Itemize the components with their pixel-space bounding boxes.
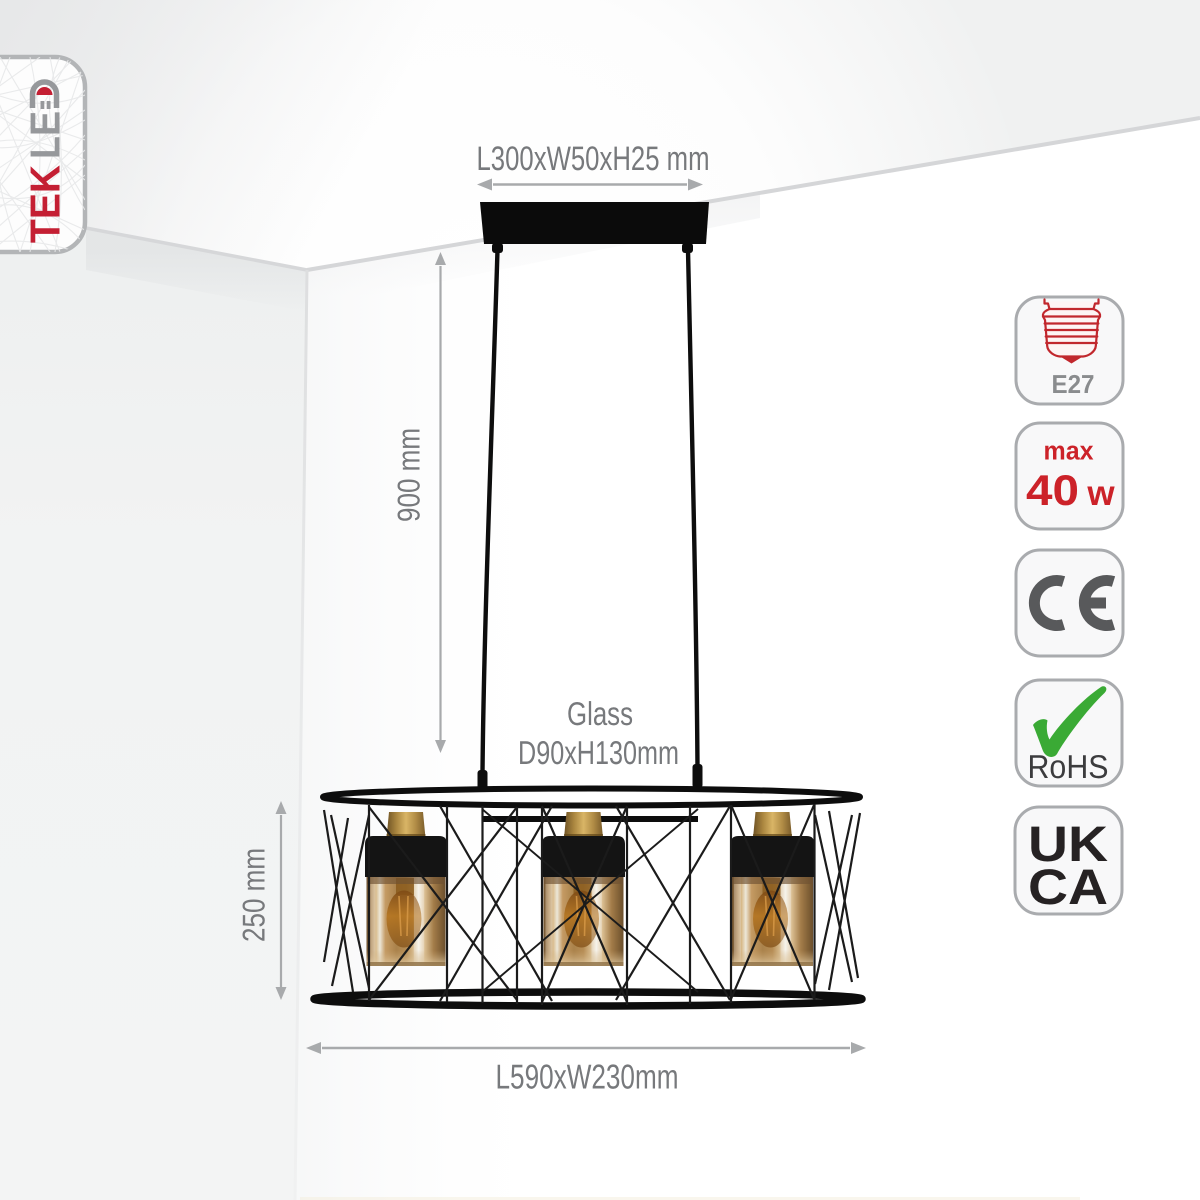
svg-text:max: max [1044, 436, 1095, 466]
svg-text:L590xW230mm: L590xW230mm [496, 1059, 679, 1097]
svg-text:TEK: TEK [22, 165, 69, 243]
svg-text:250 mm: 250 mm [236, 848, 272, 942]
svg-text:CA: CA [1028, 859, 1108, 915]
svg-text:40: 40 [1026, 467, 1079, 515]
svg-text:w: w [1086, 474, 1115, 513]
svg-text:Glass: Glass [567, 695, 633, 732]
svg-text:D90xH130mm: D90xH130mm [518, 734, 679, 771]
svg-text:E27: E27 [1052, 369, 1095, 399]
svg-text:900 mm: 900 mm [391, 428, 427, 522]
svg-text:RoHS: RoHS [1028, 748, 1109, 785]
svg-text:LE: LE [22, 111, 69, 159]
svg-text:L300xW50xH25 mm: L300xW50xH25 mm [477, 140, 710, 178]
